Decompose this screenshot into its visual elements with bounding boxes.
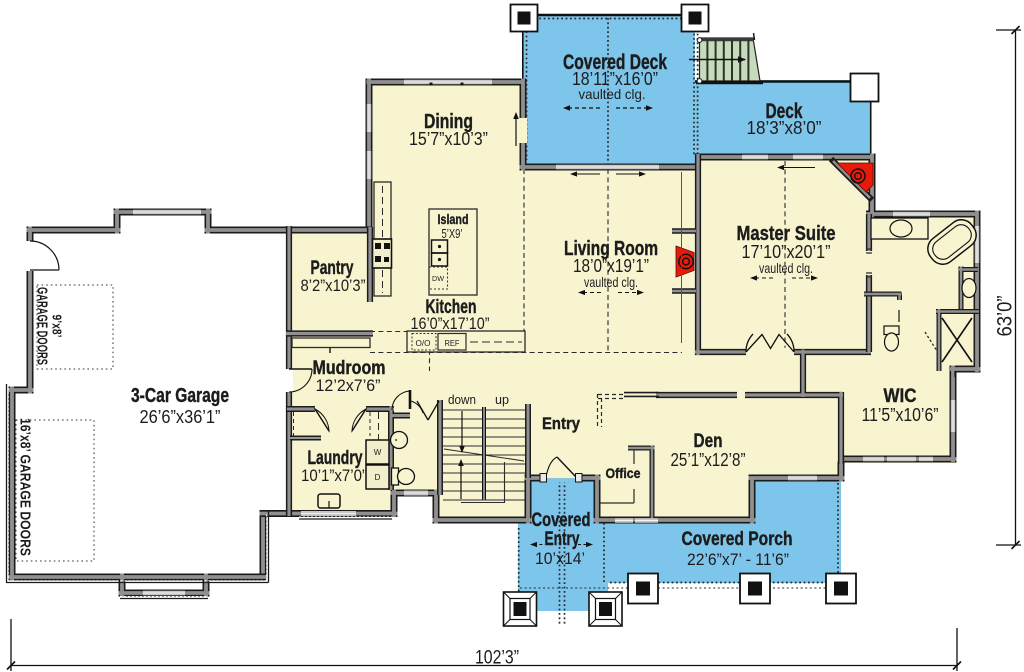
svg-text:O/O: O/O [416, 339, 431, 348]
svg-text:REF: REF [445, 339, 460, 348]
svg-text:25’1”x12’8”: 25’1”x12’8” [671, 450, 746, 470]
svg-text:18’0”x19’1”: 18’0”x19’1” [573, 256, 649, 276]
svg-text:Office: Office [606, 466, 641, 481]
svg-text:63’0”: 63’0” [994, 296, 1017, 337]
svg-text:vaulted clg.: vaulted clg. [584, 274, 638, 290]
svg-text:12’2x7’6”: 12’2x7’6” [316, 376, 381, 395]
svg-text:Covered Porch: Covered Porch [682, 529, 793, 550]
svg-text:16’x8’ GARAGE DOORS: 16’x8’ GARAGE DOORS [17, 418, 33, 556]
svg-text:Entry: Entry [542, 414, 580, 433]
svg-text:W: W [374, 448, 382, 457]
svg-text:9’x8’: 9’x8’ [50, 315, 64, 338]
svg-text:GARAGE DOORS: GARAGE DOORS [34, 287, 51, 365]
svg-text:Den: Den [694, 431, 723, 452]
svg-text:5’X9’: 5’X9’ [442, 226, 463, 241]
svg-text:vaulted clg.: vaulted clg. [759, 260, 813, 276]
svg-text:16’0”x17’10”: 16’0”x17’10” [411, 314, 490, 333]
svg-text:8’2”x10’3”: 8’2”x10’3” [301, 276, 366, 295]
svg-text:Entry: Entry [545, 529, 580, 550]
svg-text:18’3”x8’0”: 18’3”x8’0” [747, 118, 822, 138]
svg-text:Island: Island [438, 211, 469, 227]
svg-text:Covered: Covered [532, 510, 591, 531]
svg-text:26’6”x36’1”: 26’6”x36’1” [140, 407, 221, 427]
svg-text:WIC: WIC [884, 386, 917, 407]
svg-text:down: down [448, 393, 476, 407]
svg-text:10’x14’: 10’x14’ [535, 549, 585, 568]
svg-text:17’10”x20’1”: 17’10”x20’1” [742, 242, 831, 262]
svg-text:102’3”: 102’3” [475, 648, 519, 669]
svg-text:22’6”x7’ - 11’6”: 22’6”x7’ - 11’6” [687, 550, 789, 569]
svg-text:10’1”x7’0”: 10’1”x7’0” [301, 466, 367, 485]
svg-text:3-Car Garage: 3-Car Garage [131, 385, 229, 407]
svg-text:DW: DW [432, 274, 445, 283]
svg-text:15’7”x10’3”: 15’7”x10’3” [409, 129, 488, 149]
svg-text:vaulted clg.: vaulted clg. [579, 86, 646, 102]
svg-text:up: up [495, 393, 509, 407]
svg-text:11’5”x10’6”: 11’5”x10’6” [862, 405, 939, 425]
svg-text:D: D [375, 473, 381, 482]
